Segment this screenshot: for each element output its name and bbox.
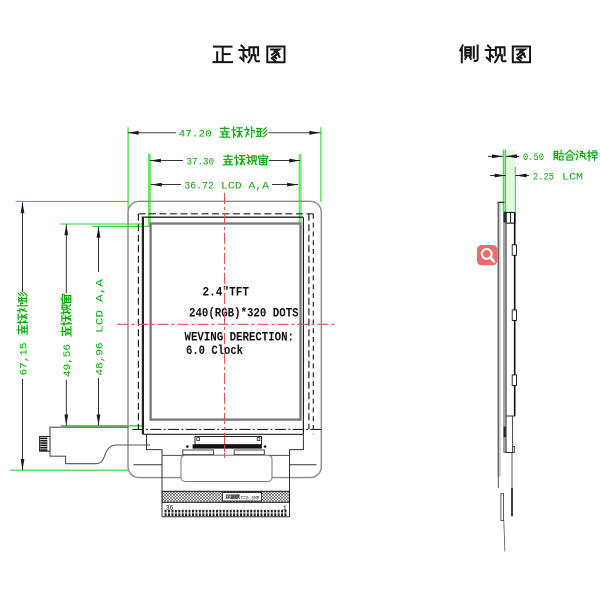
svg-text:240(RGB)*320 DOTS: 240(RGB)*320 DOTS: [189, 306, 299, 321]
svg-text:47.20: 47.20: [179, 129, 212, 141]
svg-text:36.72: 36.72: [184, 180, 214, 192]
svg-text:LCD A,A: LCD A,A: [94, 278, 106, 333]
svg-text:49,56: 49,56: [62, 344, 74, 377]
svg-text:48,96: 48,96: [94, 343, 106, 376]
svg-text:67,15: 67,15: [18, 343, 30, 376]
svg-text:LCD A,A: LCD A,A: [221, 180, 270, 192]
svg-text:LCM: LCM: [562, 171, 583, 183]
svg-text:0.50: 0.50: [523, 152, 544, 164]
svg-text:6.0 Clock: 6.0 Clock: [186, 343, 243, 358]
svg-text:37.30: 37.30: [187, 156, 215, 168]
svg-text:2.25: 2.25: [533, 171, 554, 183]
svg-text:2.4″TFT: 2.4″TFT: [203, 285, 250, 300]
svg-text:T=0.5MM: T=0.5MM: [241, 494, 260, 501]
